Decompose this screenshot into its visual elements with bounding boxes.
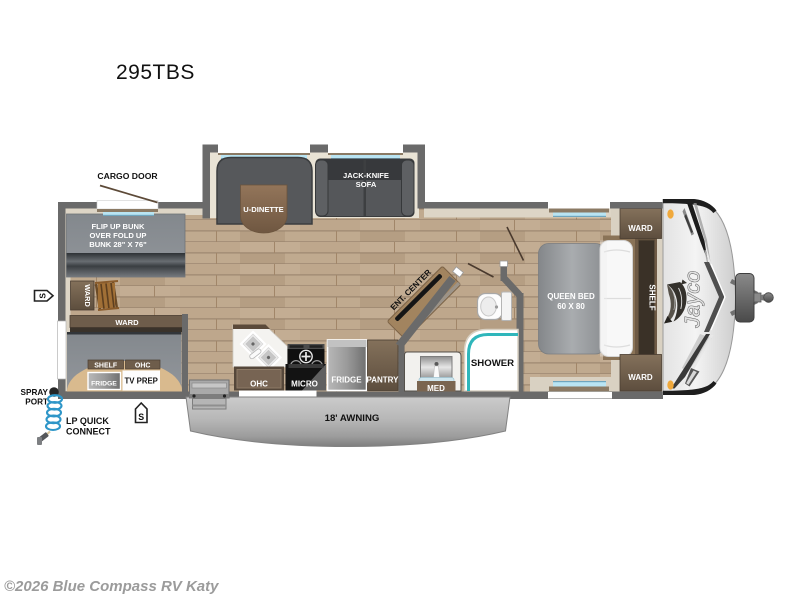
svg-text:FLIP UP BUNK: FLIP UP BUNK <box>92 222 145 231</box>
svg-text:OVER FOLD UP: OVER FOLD UP <box>90 231 147 240</box>
svg-text:OHC: OHC <box>250 380 268 389</box>
svg-text:FRIDGE: FRIDGE <box>91 381 117 388</box>
svg-text:PORT: PORT <box>25 398 48 407</box>
svg-text:U-DINETTE: U-DINETTE <box>243 205 284 214</box>
svg-text:WARD: WARD <box>628 373 653 382</box>
svg-text:JACK-KNIFE: JACK-KNIFE <box>343 171 389 180</box>
svg-text:WARD: WARD <box>115 318 139 327</box>
svg-text:SPRAY: SPRAY <box>21 388 49 397</box>
svg-text:60 X 80: 60 X 80 <box>557 302 585 311</box>
svg-text:SHELF: SHELF <box>648 284 657 310</box>
svg-text:18' AWNING: 18' AWNING <box>325 413 380 424</box>
svg-text:WARD: WARD <box>628 224 653 233</box>
svg-text:LP QUICK: LP QUICK <box>66 416 109 426</box>
svg-text:PANTRY: PANTRY <box>367 376 400 385</box>
svg-text:SHOWER: SHOWER <box>471 358 514 369</box>
svg-text:BUNK 28" X 76": BUNK 28" X 76" <box>89 240 147 249</box>
svg-text:S: S <box>138 412 144 422</box>
svg-text:SOFA: SOFA <box>356 180 377 189</box>
svg-text:FRIDGE: FRIDGE <box>331 376 362 385</box>
svg-text:Jayco: Jayco <box>682 270 705 328</box>
svg-text:MICRO: MICRO <box>291 380 318 389</box>
svg-text:SHELF: SHELF <box>94 362 118 369</box>
svg-text:CARGO DOOR: CARGO DOOR <box>97 171 158 181</box>
svg-text:TV PREP: TV PREP <box>125 377 158 386</box>
svg-text:CONNECT: CONNECT <box>66 427 111 437</box>
svg-text:S: S <box>38 293 48 299</box>
svg-text:OHC: OHC <box>135 362 151 369</box>
svg-text:WARD: WARD <box>83 284 92 307</box>
svg-text:QUEEN BED: QUEEN BED <box>547 292 595 301</box>
